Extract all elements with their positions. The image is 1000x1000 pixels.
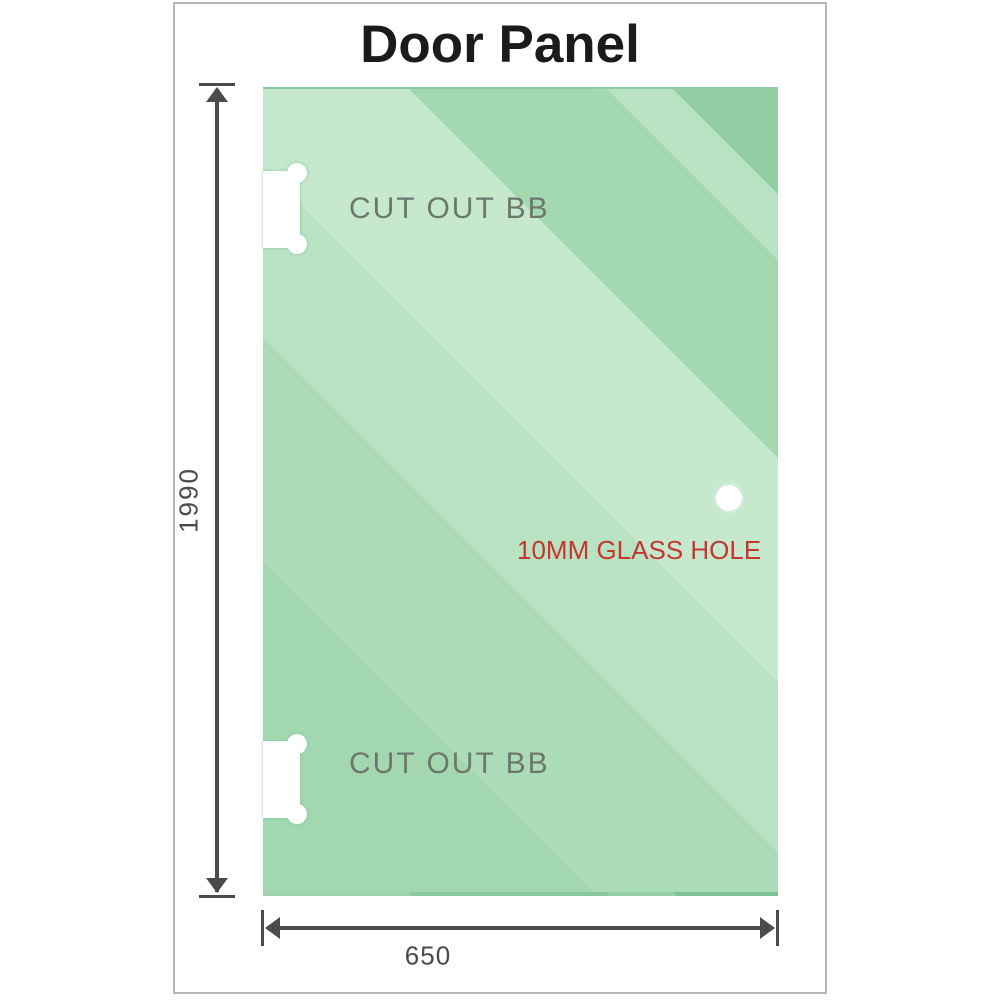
width-dimension-line [267,926,773,930]
diagram-title: Door Panel [173,14,827,75]
cutout-top-label: CUT OUT BB [349,192,550,226]
height-dimension-line [215,89,219,892]
width-dimension-arrow-right-icon [760,917,775,939]
diagram-canvas: Door Panel CUT OUT BB CUT OUT BB 10MM GL… [0,0,1000,1000]
hinge-cutout-top [263,163,308,255]
hinge-cutout-bottom [263,733,308,825]
height-dimension-arrow-down-icon [206,878,228,893]
width-dimension-value: 650 [405,941,451,972]
hinge-cutout-top-lobe-upper [287,163,307,183]
cutout-bottom-label: CUT OUT BB [349,747,550,781]
width-dimension-tick-left [261,910,264,946]
glass-hole [716,485,742,511]
height-dimension-cap-top [199,83,235,86]
width-dimension-tick-right [776,910,779,946]
height-dimension-arrow-up-icon [206,87,228,102]
hinge-cutout-bottom-lobe-upper [287,734,307,754]
hinge-cutout-bottom-lobe-lower [287,804,307,824]
width-dimension-arrow-left-icon [265,917,280,939]
hinge-cutout-top-lobe-lower [287,234,307,254]
height-dimension-value: 1990 [174,467,205,533]
glass-hole-label: 10MM GLASS HOLE [517,535,761,566]
height-dimension-cap-bottom [199,895,235,898]
